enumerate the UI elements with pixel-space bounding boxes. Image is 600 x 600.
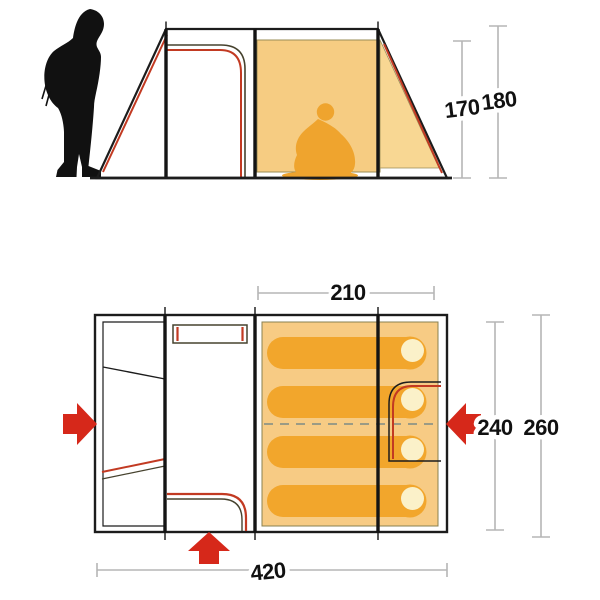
outer-depth-label: 260 — [523, 415, 558, 440]
front-door-outline — [167, 499, 242, 531]
pillow — [401, 339, 424, 362]
outer-height-label: 180 — [480, 86, 518, 115]
side-elevation-view: 170 180 — [42, 9, 518, 180]
dimension-inner-height: 170 — [443, 41, 481, 178]
pillow — [401, 388, 424, 411]
entrance-arrow-left — [63, 403, 97, 445]
dimension-outer-depth: 260 — [523, 315, 558, 537]
floor-plan-view: 210 — [63, 280, 559, 586]
inner-depth-label: 240 — [477, 415, 512, 440]
sleeping-bag — [267, 337, 427, 370]
total-length-label: 420 — [249, 557, 287, 586]
dimension-inner-depth: 240 — [477, 322, 512, 530]
vestibule-door-red-line — [102, 459, 165, 472]
inner-height-label: 170 — [443, 94, 481, 123]
vestibule-door-outline — [102, 466, 165, 479]
sleeping-bag — [267, 386, 427, 419]
left-slant-red-line — [103, 35, 167, 172]
side-door-red-line — [166, 50, 241, 177]
standing-person-icon — [42, 9, 104, 177]
side-door-outline — [166, 45, 245, 177]
dimension-sleeping-width: 210 — [258, 280, 434, 305]
sleeping-width-label: 210 — [330, 280, 365, 305]
entrance-arrow-right — [446, 403, 481, 445]
vestibule-panel-line — [103, 367, 165, 379]
entrance-arrow-bottom — [188, 532, 230, 564]
pillow — [401, 438, 424, 461]
vestibule-inner-line — [103, 322, 165, 526]
dimension-outer-height: 180 — [480, 26, 518, 178]
pillow — [401, 487, 424, 510]
sleeping-bag — [267, 436, 427, 469]
sleeping-bag — [267, 485, 427, 518]
tent-dimensions-diagram: 170 180 210 — [0, 0, 600, 600]
window — [173, 325, 247, 343]
dimension-total-length: 420 — [97, 557, 447, 586]
